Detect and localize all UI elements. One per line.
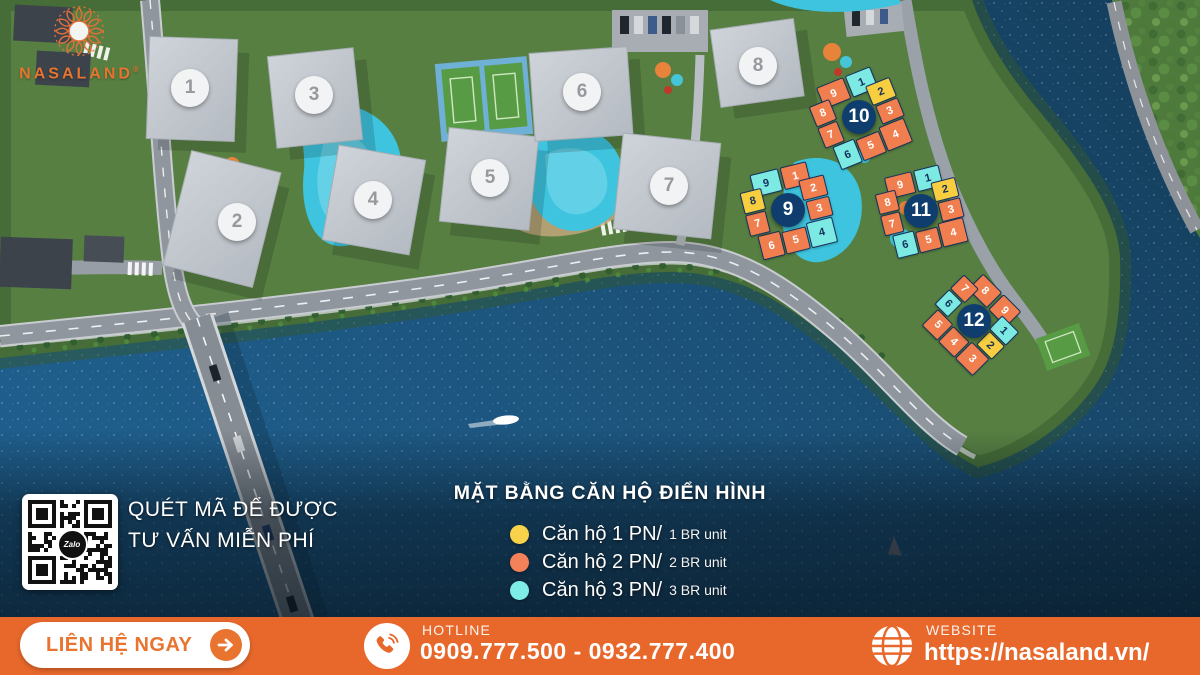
building-badge-2: 2 xyxy=(218,203,256,241)
building-badge-1: 1 xyxy=(171,69,209,107)
legend-item-2br: Căn hộ 2 PN/2 BR unit xyxy=(510,548,800,576)
unit-type-legend: MẶT BẰNG CĂN HỘ ĐIỂN HÌNH Căn hộ 1 PN/1 … xyxy=(420,482,800,604)
cta-button[interactable]: LIÊN HỆ NGAY xyxy=(20,622,250,668)
lotus-emblem-icon xyxy=(46,4,112,60)
legend-label-en: 2 BR unit xyxy=(669,554,727,570)
website-label: WEBSITE xyxy=(926,622,997,638)
legend-dot-3br xyxy=(510,581,529,600)
footer-bar: LIÊN HỆ NGAY HOTLINE 0909.777.500 - 0932… xyxy=(0,617,1200,675)
zalo-qr-code: Zalo xyxy=(22,494,118,590)
poster: NASALAND® 123456789123456789912345678109… xyxy=(0,0,1200,675)
hotline-numbers[interactable]: 0909.777.500 - 0932.777.400 xyxy=(420,638,735,665)
building-badge-5: 5 xyxy=(471,159,509,197)
qr-caption-line1: QUÉT MÃ ĐỂ ĐƯỢC xyxy=(128,494,338,525)
legend-label-en: 1 BR unit xyxy=(669,526,727,542)
building-badge-9: 9 xyxy=(771,193,805,227)
building-badge-11: 11 xyxy=(904,194,938,228)
brand-logo: NASALAND® xyxy=(14,4,144,83)
building-badge-10: 10 xyxy=(842,100,876,134)
building-badge-7: 7 xyxy=(650,167,688,205)
building-badge-3: 3 xyxy=(295,76,333,114)
website-url[interactable]: https://nasaland.vn/ xyxy=(924,639,1149,667)
legend-dot-2br xyxy=(510,553,529,572)
legend-label-vi: Căn hộ 1 PN/ xyxy=(542,523,662,546)
qr-caption: QUÉT MÃ ĐỂ ĐƯỢC TƯ VẤN MIỄN PHÍ xyxy=(128,494,338,556)
globe-icon xyxy=(869,623,915,669)
legend-dot-1br xyxy=(510,525,529,544)
legend-item-3br: Căn hộ 3 PN/3 BR unit xyxy=(510,576,800,604)
registered-mark: ® xyxy=(133,65,139,74)
brand-name: NASALAND® xyxy=(14,65,144,83)
legend-label-vi: Căn hộ 2 PN/ xyxy=(542,551,662,574)
legend-label-vi: Căn hộ 3 PN/ xyxy=(542,579,662,602)
building-badge-6: 6 xyxy=(563,73,601,111)
arrow-right-icon xyxy=(210,629,242,661)
phone-icon xyxy=(364,623,410,669)
legend-item-1br: Căn hộ 1 PN/1 BR unit xyxy=(510,520,800,548)
building-badge-4: 4 xyxy=(354,181,392,219)
legend-title: MẶT BẰNG CĂN HỘ ĐIỂN HÌNH xyxy=(420,482,800,505)
building-badge-8: 8 xyxy=(739,47,777,85)
hotline-label: HOTLINE xyxy=(422,622,491,638)
cta-label: LIÊN HỆ NGAY xyxy=(46,634,192,657)
building-badge-12: 12 xyxy=(957,304,991,338)
legend-label-en: 3 BR unit xyxy=(669,582,727,598)
zalo-logo: Zalo xyxy=(57,529,88,560)
qr-caption-line2: TƯ VẤN MIỄN PHÍ xyxy=(128,525,338,556)
